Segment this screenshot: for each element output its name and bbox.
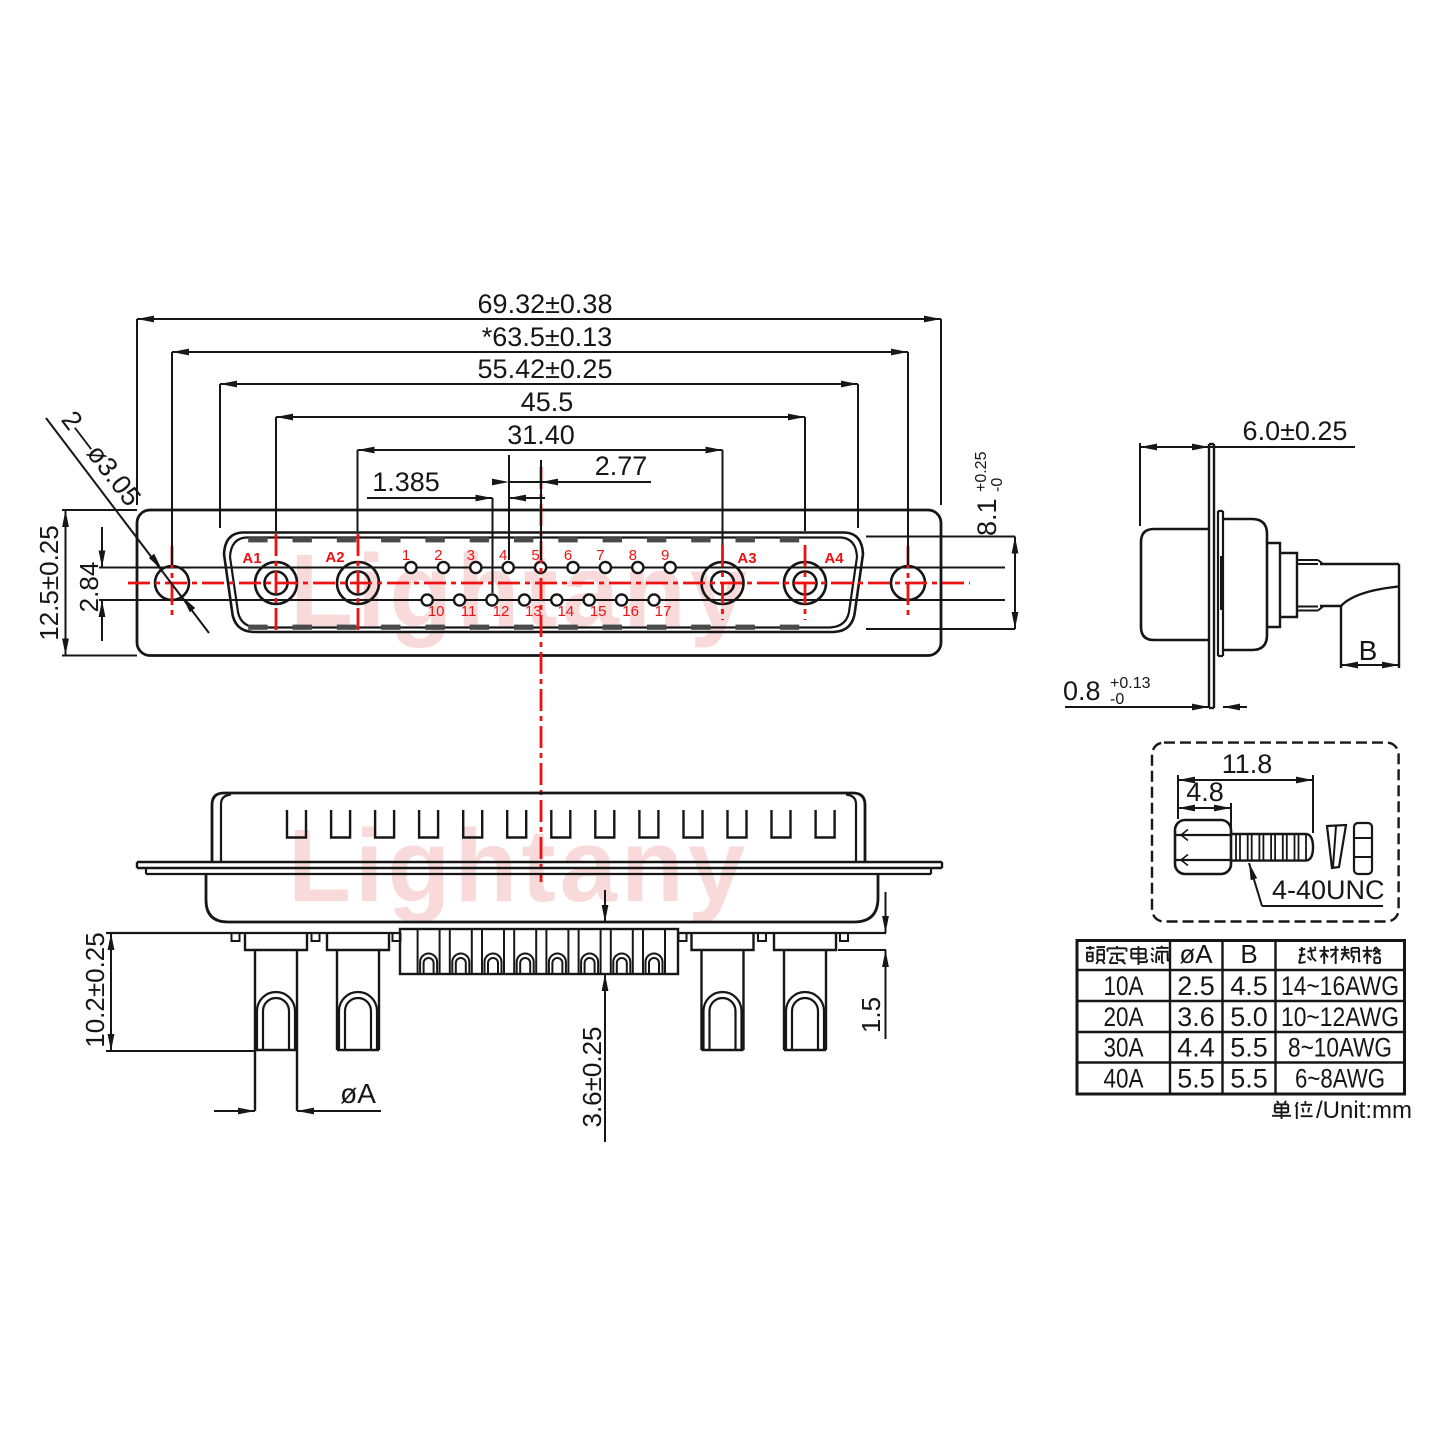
svg-text:14: 14 [557,603,574,620]
svg-text:17: 17 [655,603,672,620]
svg-text:-0: -0 [1110,691,1124,708]
svg-text:11: 11 [461,603,477,620]
svg-text:*63.5±0.13: *63.5±0.13 [482,322,612,352]
svg-text:6: 6 [564,547,572,564]
svg-text:A4: A4 [824,550,844,567]
svg-text:B: B [1240,939,1257,969]
svg-text:A2: A2 [325,549,344,566]
svg-text:20A: 20A [1104,1002,1144,1032]
svg-text:9: 9 [661,547,669,564]
svg-text:2.77: 2.77 [595,451,648,481]
svg-text:40A: 40A [1104,1064,1144,1094]
svg-text:4: 4 [499,547,507,564]
svg-text:10: 10 [428,603,445,620]
svg-text:14~16AWG: 14~16AWG [1281,971,1399,1001]
svg-text:1.385: 1.385 [372,467,440,497]
svg-text:A1: A1 [242,550,261,567]
svg-text:-0: -0 [989,478,1006,492]
svg-text:+0.13: +0.13 [1110,675,1151,692]
svg-text:3.6: 3.6 [1177,1002,1215,1032]
svg-text:4.4: 4.4 [1177,1033,1215,1063]
svg-text:1.5: 1.5 [856,997,886,1033]
svg-text:5.5: 5.5 [1230,1033,1268,1063]
svg-text:8.1: 8.1 [972,498,1002,536]
svg-text:2.5: 2.5 [1177,971,1215,1001]
svg-text:+0.25: +0.25 [973,451,990,492]
svg-text:11.8: 11.8 [1222,749,1273,779]
svg-text:4.8: 4.8 [1186,777,1224,807]
svg-text:5: 5 [531,547,539,564]
svg-text:Lightany: Lightany [288,808,749,923]
svg-text:69.32±0.38: 69.32±0.38 [478,289,613,319]
svg-text:45.5: 45.5 [521,387,574,417]
svg-text:10.2±0.25: 10.2±0.25 [80,932,110,1047]
svg-text:13: 13 [525,603,542,620]
svg-text:1: 1 [402,547,410,564]
svg-text:30A: 30A [1104,1033,1144,1063]
svg-text:4-40UNC: 4-40UNC [1272,875,1385,905]
svg-text:2.84: 2.84 [74,562,104,613]
svg-text:3.6±0.25: 3.6±0.25 [577,1026,607,1127]
svg-text:A3: A3 [737,550,756,567]
svg-text:3: 3 [467,547,475,564]
svg-text:0.8: 0.8 [1063,676,1101,706]
svg-text:10A: 10A [1104,971,1144,1001]
svg-text:5.5: 5.5 [1230,1064,1268,1094]
svg-text:6~8AWG: 6~8AWG [1295,1064,1385,1094]
svg-text:12.5±0.25: 12.5±0.25 [34,525,64,640]
svg-text:7: 7 [596,547,604,564]
svg-text:15: 15 [590,603,607,620]
svg-text:B: B [1359,635,1378,666]
svg-text:31.40: 31.40 [507,420,575,450]
svg-text:øA: øA [340,1078,376,1109]
svg-text:2: 2 [434,547,442,564]
svg-text:/Unit:mm: /Unit:mm [1316,1097,1412,1124]
svg-text:10~12AWG: 10~12AWG [1281,1002,1399,1032]
svg-text:8: 8 [629,547,637,564]
svg-text:55.42±0.25: 55.42±0.25 [478,354,613,384]
svg-text:5.0: 5.0 [1230,1002,1268,1032]
svg-text:12: 12 [493,603,510,620]
svg-text:16: 16 [622,603,639,620]
svg-text:4.5: 4.5 [1230,971,1268,1001]
svg-text:8~10AWG: 8~10AWG [1288,1033,1392,1063]
svg-text:5.5: 5.5 [1177,1064,1215,1094]
svg-text:øA: øA [1179,939,1213,969]
svg-text:6.0±0.25: 6.0±0.25 [1243,416,1348,446]
